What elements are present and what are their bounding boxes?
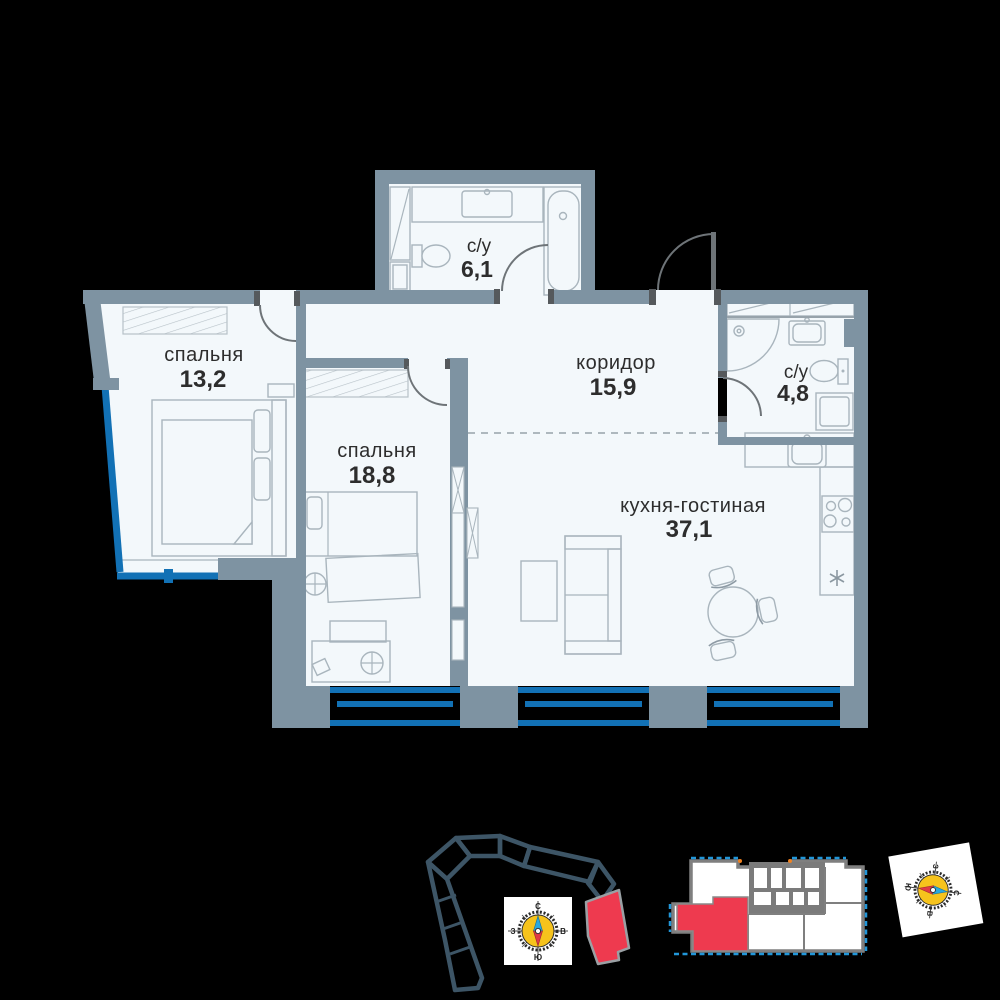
bedroom2-door-gap — [408, 358, 447, 368]
wall — [375, 170, 389, 292]
wardrobe — [303, 370, 408, 397]
pillow — [254, 410, 270, 452]
highlighted-apartment — [677, 897, 748, 951]
wall — [718, 437, 854, 445]
bathtub — [544, 187, 583, 295]
floor-location-plan — [670, 858, 866, 954]
bottom-window-2 — [518, 686, 649, 726]
wardrobe — [123, 307, 227, 334]
toilet-tank — [412, 245, 422, 267]
bottom-window-1 — [330, 686, 460, 726]
wall — [93, 378, 119, 390]
apartment-floor-plan: спальня 13,2 спальня 18,8 с/у 6,1 коридо… — [83, 170, 868, 728]
wall-pier — [649, 686, 707, 728]
wall — [854, 290, 868, 726]
bottom-window-3 — [707, 686, 840, 726]
nightstand — [268, 384, 294, 397]
floor-plan-svg: С Ю З В — [0, 0, 1000, 1000]
wall-stub — [844, 319, 854, 347]
door-leaf — [711, 232, 716, 290]
orientation-compass-card — [888, 842, 983, 937]
bathroom1-area: 6,1 — [461, 256, 493, 282]
site-building-block — [524, 847, 598, 882]
bedroom2-area: 18,8 — [349, 462, 396, 489]
corridor-label: коридор — [576, 352, 656, 374]
wall — [296, 290, 500, 304]
bathroom1-door-gap — [500, 290, 548, 304]
bedroom1-area: 13,2 — [180, 366, 227, 393]
wall-pier — [272, 686, 330, 728]
toilet-bowl — [422, 245, 450, 267]
site-highlighted-building — [586, 890, 629, 964]
screenshot-stage: С Ю З В — [0, 0, 1000, 1000]
toilet-bowl — [810, 361, 838, 382]
wall-pier — [460, 686, 518, 728]
core-cells — [754, 868, 819, 905]
kitchen-area: 37,1 — [666, 516, 713, 543]
wall — [581, 170, 595, 292]
wall-pier — [840, 686, 868, 728]
wall — [548, 290, 656, 304]
door-swing-arc — [658, 234, 714, 290]
bedroom2-label: спальня — [337, 440, 416, 462]
pillow — [307, 497, 322, 529]
bathroom1-label: с/у — [467, 236, 492, 257]
site-compass-card — [504, 897, 572, 965]
site-building-block — [456, 836, 500, 856]
corridor-area: 15,9 — [590, 374, 637, 401]
wall — [718, 304, 727, 378]
kitchen-label: кухня-гостиная — [620, 495, 766, 517]
wall — [375, 170, 595, 184]
marker-dot — [738, 859, 742, 863]
wall — [714, 290, 868, 304]
wall — [306, 358, 408, 368]
bedroom1-door-gap — [260, 290, 296, 304]
wall — [83, 290, 260, 304]
bathroom2-area: 4,8 — [777, 380, 809, 406]
pillow — [254, 458, 270, 500]
kitchen-floor — [468, 433, 854, 686]
marker-dot — [788, 859, 792, 863]
site-building-block — [428, 838, 470, 879]
bedroom1-label: спальня — [164, 344, 243, 366]
entrance-door-gap — [656, 290, 714, 304]
dining-table — [708, 587, 758, 637]
